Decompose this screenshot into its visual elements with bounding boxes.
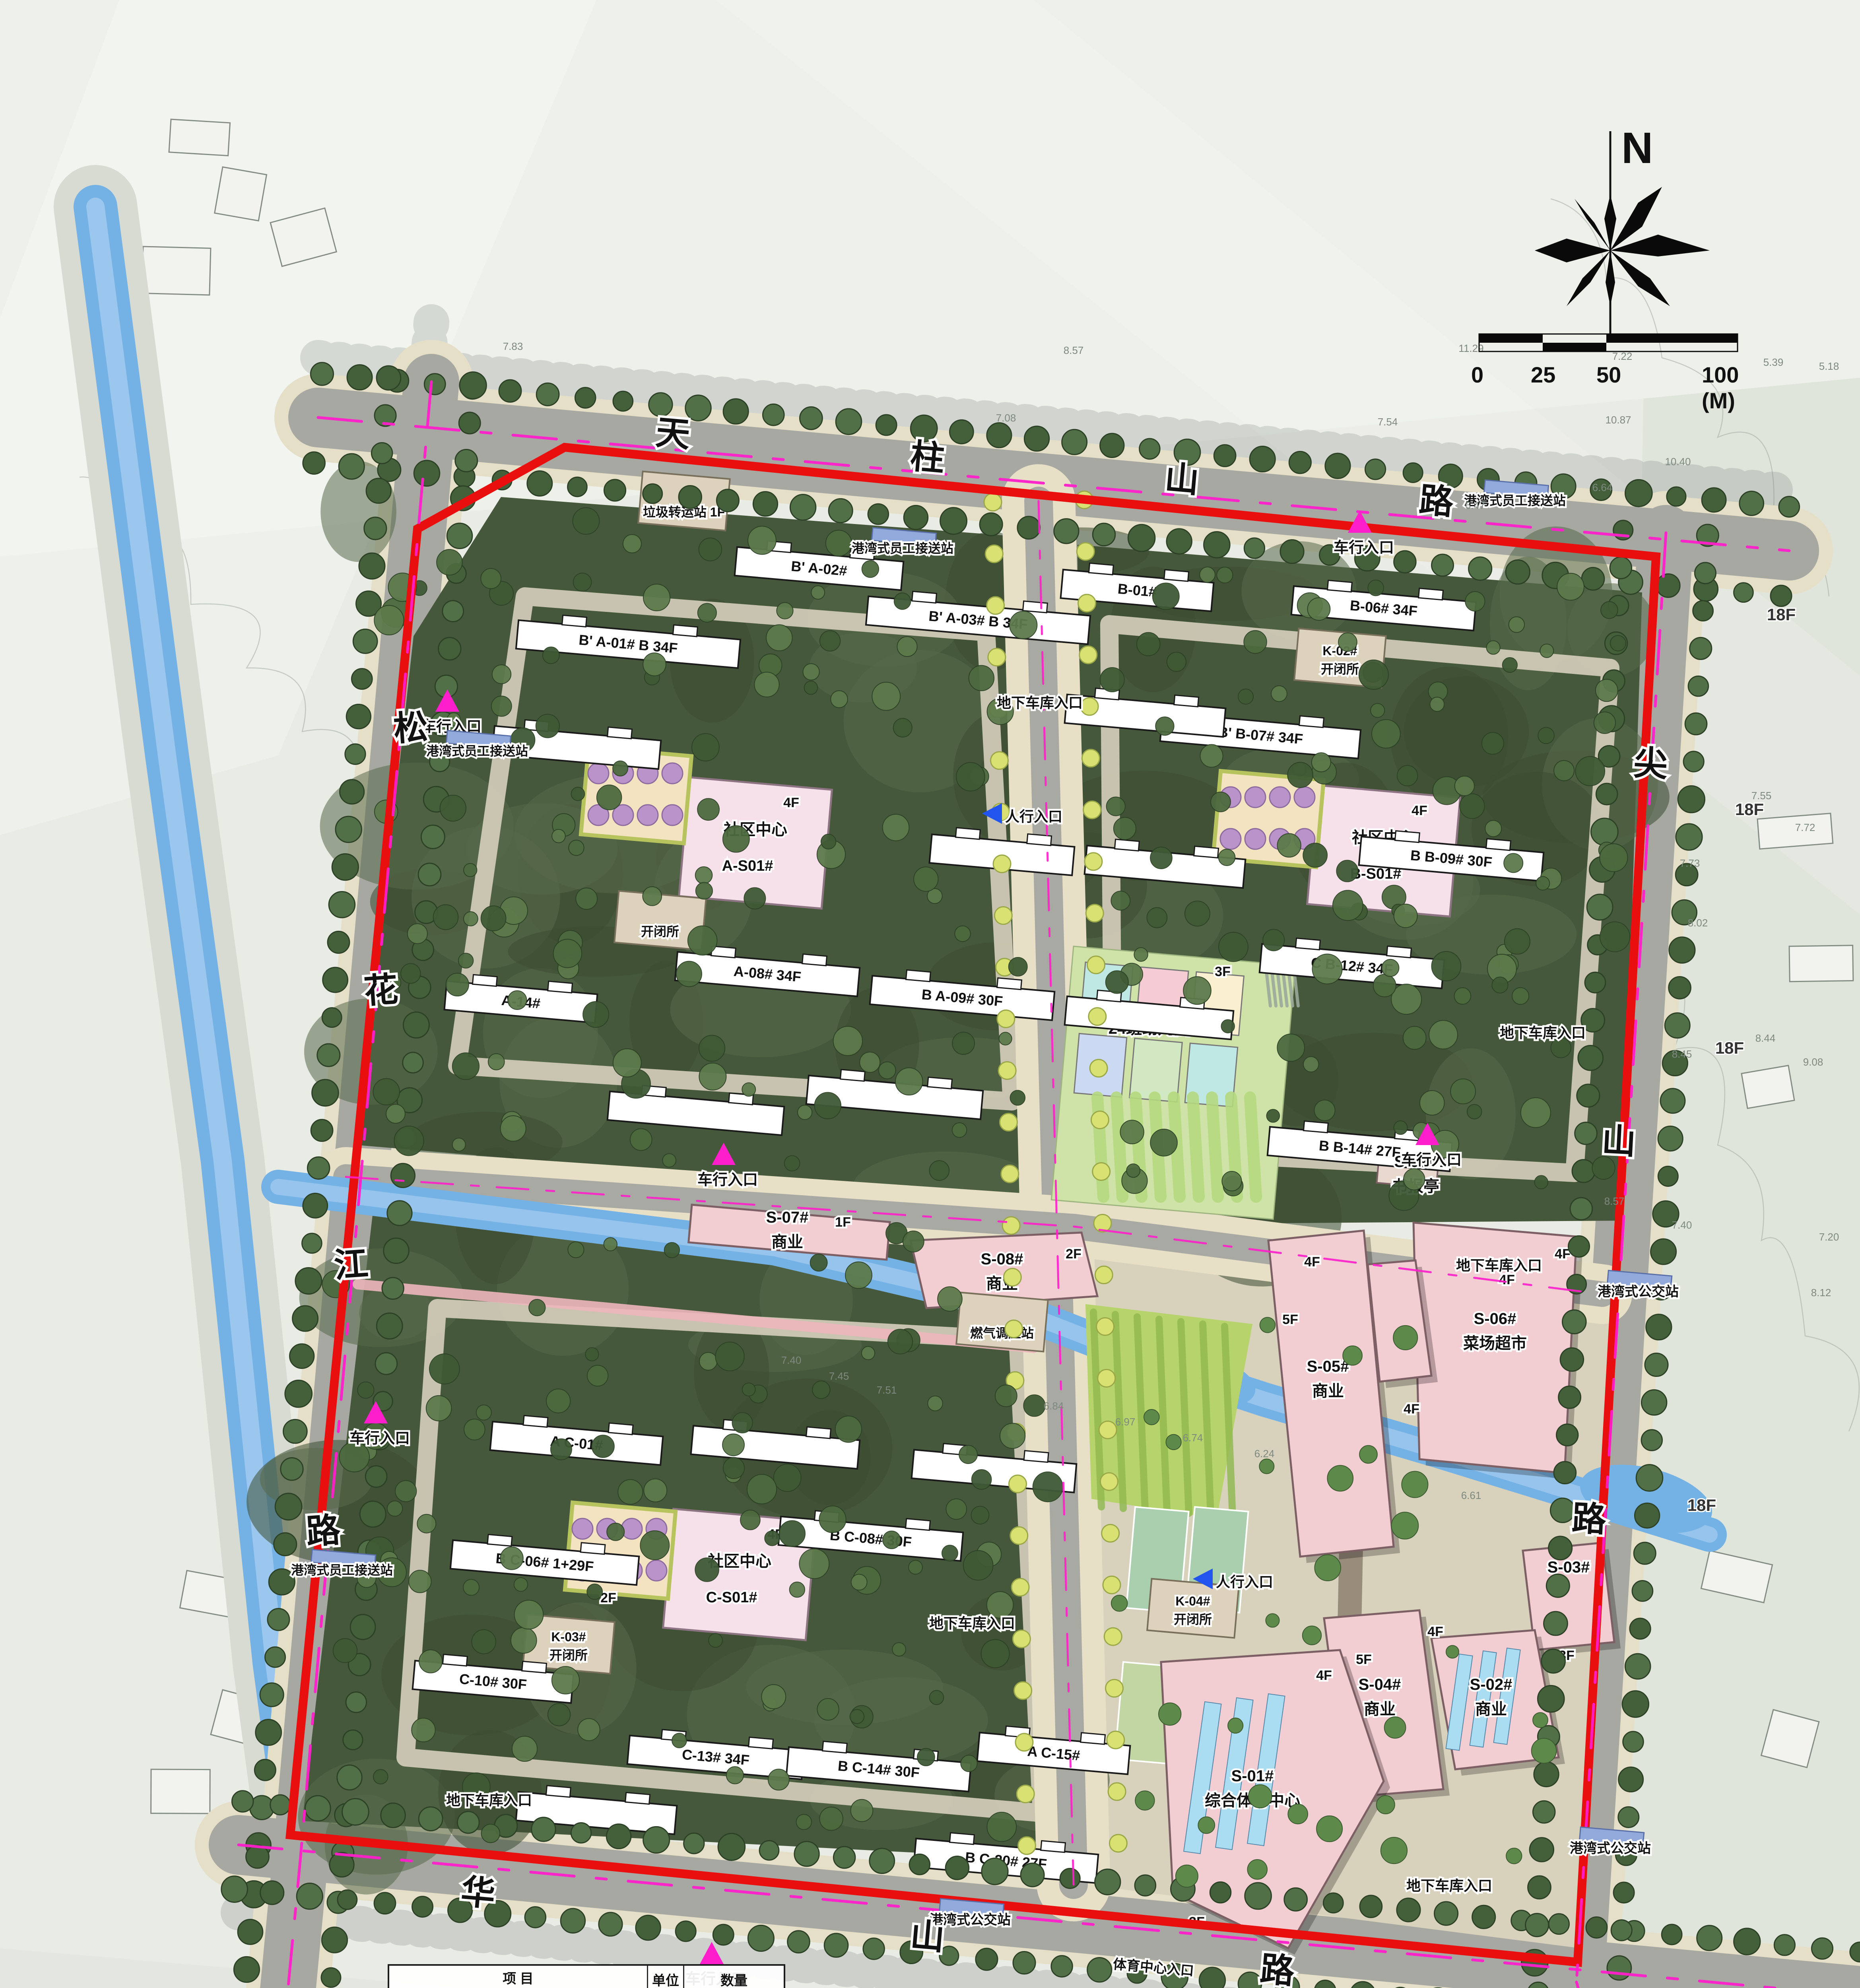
street-tree [1690, 637, 1712, 659]
courtyard-tree [768, 1769, 789, 1790]
courtyard-tree [408, 924, 427, 944]
street-tree [384, 1238, 409, 1264]
street-tree [1403, 463, 1423, 482]
courtyard-tree [872, 682, 900, 711]
courtyard-tree [529, 1299, 545, 1316]
street-tree [1660, 1089, 1685, 1113]
map-shape [1041, 1841, 1066, 1852]
street-tree [1572, 1160, 1595, 1182]
courtyard-tree [845, 1262, 872, 1289]
street-tree [1506, 560, 1530, 584]
street-tree [723, 399, 748, 424]
commercial-id: S-02# [1470, 1676, 1512, 1693]
survey-elevation: 8.57 [1064, 344, 1084, 356]
courtyard-tree [961, 1755, 977, 1772]
street-tree [748, 1925, 774, 1951]
street-tree [1093, 523, 1115, 546]
street-tree [1021, 1863, 1044, 1887]
courtyard-tree [1137, 633, 1160, 656]
map-shape [548, 981, 573, 993]
courtyard-tree [1333, 890, 1363, 920]
courtyard-tree [1126, 1164, 1140, 1177]
floor-tag: 2F [1066, 1246, 1081, 1262]
survey-elevation: 7.40 [1672, 1219, 1692, 1231]
courtyard-tree [1467, 1105, 1482, 1119]
street-tree [525, 1907, 546, 1928]
courtyard-tree [826, 530, 852, 556]
street-tree [1676, 824, 1702, 850]
street-tree [794, 1842, 819, 1866]
ornamental-tree [990, 752, 1008, 769]
street-tree [270, 1795, 290, 1815]
street-tree [606, 1824, 631, 1849]
courtyard-tree [419, 1650, 442, 1673]
scale-tick: 100 (M) [1702, 362, 1749, 414]
street-tree [1774, 1935, 1795, 1955]
street-tree [418, 863, 441, 886]
courtyard-tree [695, 1558, 718, 1581]
map-shape [997, 978, 1022, 990]
ornamental-tree [985, 545, 1003, 563]
courtyard-tree [548, 1703, 570, 1726]
commercial-id: S-01# [1231, 1767, 1274, 1785]
street-tree [1244, 538, 1264, 558]
commercial-id: S-03# [1547, 1559, 1590, 1576]
survey-elevation: 10.40 [1665, 456, 1691, 468]
courtyard-tree [543, 647, 559, 664]
plaza-tree [1377, 1796, 1395, 1814]
plaza-tree [1228, 1718, 1243, 1733]
courtyard-tree [511, 1627, 537, 1653]
map-shape [443, 1654, 467, 1666]
street-tree [303, 452, 325, 474]
courtyard-tree [811, 586, 825, 599]
courtyard-tree [481, 906, 506, 931]
courtyard-tree [1455, 776, 1474, 796]
commercial-id: S-04# [1359, 1676, 1401, 1693]
plaza-tree [1260, 1317, 1276, 1333]
street-tree [459, 412, 480, 434]
courtyard-tree [373, 1079, 400, 1105]
courtyard-tree [688, 926, 717, 955]
plaza-tree [1532, 1738, 1556, 1763]
survey-elevation: 6.64 [1592, 481, 1613, 493]
courtyard-tree [917, 1748, 935, 1766]
street-tree [365, 1466, 387, 1487]
plaza-tree [1381, 1837, 1407, 1864]
street-tree [232, 1791, 253, 1812]
flowering-tree [646, 1560, 667, 1581]
street-tree [636, 1915, 660, 1940]
street-tree [1683, 751, 1704, 772]
ornamental-tree [1098, 1369, 1115, 1387]
street-tree [499, 380, 521, 402]
street-tree [1610, 557, 1632, 579]
street-tree [946, 1856, 969, 1880]
map-shape [1304, 1121, 1328, 1133]
survey-elevation: 7.54 [1378, 416, 1398, 428]
street-tree [1693, 601, 1713, 621]
courtyard-tree [1010, 1090, 1025, 1105]
street-tree [377, 1313, 402, 1339]
survey-elevation: 8.02 [1688, 917, 1708, 929]
courtyard-tree [618, 1479, 643, 1504]
flowering-tree [1245, 787, 1266, 808]
courtyard-tree [1106, 971, 1128, 993]
street-tree [254, 1759, 276, 1780]
courtyard-tree [1397, 765, 1417, 786]
street-tree [1656, 574, 1680, 597]
survey-elevation: 6.47 [1465, 499, 1485, 511]
street-tree [1771, 585, 1792, 606]
street-tree [1100, 433, 1124, 457]
street-tree [305, 1796, 330, 1821]
courtyard-tree [1287, 762, 1313, 788]
courtyard-tree [799, 1549, 829, 1579]
street-tree [347, 365, 372, 390]
ornamental-tree [1014, 1682, 1032, 1699]
floor-tag: 4F [1427, 1624, 1443, 1639]
courtyard-tree [820, 631, 841, 651]
kindergarten-floors: 3F [1215, 964, 1231, 979]
courtyard-tree [883, 1531, 900, 1549]
map-shape [608, 727, 632, 739]
plaza-tree [1135, 1791, 1154, 1810]
map-shape [562, 615, 587, 627]
road-name-char: 尖 [1633, 744, 1669, 784]
plaza-tree [1166, 1435, 1181, 1450]
street-tree [982, 1858, 1008, 1885]
plaza-tree [1393, 1326, 1417, 1350]
courtyard-tree [1403, 1026, 1426, 1049]
street-tree [568, 477, 587, 497]
street-tree [1167, 529, 1192, 554]
ornamental-tree [1100, 1473, 1118, 1490]
street-tree [1811, 1938, 1833, 1959]
street-tree [340, 780, 364, 804]
street-tree [575, 388, 596, 408]
street-tree [1054, 519, 1079, 544]
courtyard-tree [1147, 908, 1167, 928]
plaza-tree [1446, 1645, 1459, 1658]
courtyard-tree [723, 826, 749, 852]
vehicle-entrance-label: 车行入口 [697, 1172, 758, 1188]
street-tree [679, 485, 701, 508]
courtyard-tree [1267, 1109, 1280, 1122]
street-tree [1632, 1581, 1653, 1602]
courtyard-tree [744, 888, 765, 909]
courtyard-tree [426, 1396, 452, 1421]
courtyard-tree [1534, 1175, 1548, 1189]
street-tree [836, 409, 862, 435]
street-tree [1365, 459, 1386, 480]
courtyard-tree [894, 593, 911, 610]
courtyard-tree [699, 1035, 725, 1061]
courtyard-tree [812, 1381, 830, 1398]
street-tree [1613, 1882, 1634, 1903]
courtyard-tree [695, 867, 713, 884]
road-name-char: 华 [460, 1873, 497, 1914]
street-tree [403, 1012, 429, 1038]
shuttle-stop-label: 港湾式员工接送站 [426, 744, 528, 758]
street-tree [1128, 524, 1155, 551]
street-tree [536, 383, 559, 406]
survey-elevation: 7.45 [829, 1370, 849, 1382]
ornamental-tree [1109, 1835, 1127, 1852]
courtyard-tree [1504, 854, 1523, 873]
courtyard-tree [1010, 611, 1037, 639]
plaza-tree [1327, 1466, 1353, 1491]
street-tree [1544, 1611, 1568, 1635]
map-shape [522, 1661, 547, 1673]
street-tree [328, 931, 349, 953]
road-name-char: 路 [1571, 1499, 1608, 1539]
ornamental-tree [1004, 1268, 1021, 1286]
courtyard-tree [817, 1699, 839, 1720]
street-tree [238, 1920, 263, 1945]
street-tree [1665, 1013, 1690, 1038]
street-tree [571, 1823, 591, 1843]
courtyard-tree [999, 1032, 1012, 1045]
street-tree [1702, 488, 1726, 512]
street-tree [332, 854, 358, 880]
survey-elevation: 6.24 [1254, 1448, 1275, 1460]
street-tree [643, 484, 662, 503]
courtyard-tree [464, 912, 478, 926]
street-tree [763, 404, 784, 425]
street-tree [1625, 1654, 1650, 1679]
courtyard-tree [697, 798, 719, 820]
street-tree [1472, 1905, 1495, 1928]
community-floors: 4F [1412, 803, 1427, 818]
courtyard-tree [417, 1514, 436, 1533]
ornamental-tree [998, 1062, 1016, 1079]
plaza-tree [1343, 1346, 1362, 1365]
street-tree [604, 480, 625, 501]
street-tree [868, 504, 889, 524]
street-tree [323, 967, 348, 992]
existing-building [169, 119, 230, 156]
courtyard-tree [732, 1413, 753, 1433]
ornamental-tree [988, 648, 1006, 666]
flowering-tree [1220, 829, 1241, 849]
commercial-id: S-05# [1307, 1358, 1349, 1375]
courtyard-tree [952, 1032, 975, 1054]
flowering-tree [621, 1518, 642, 1539]
ornamental-tree [1078, 594, 1096, 612]
courtyard-tree [1485, 820, 1501, 837]
flowering-tree [572, 1518, 593, 1539]
courtyard-tree [440, 795, 466, 821]
street-tree [311, 1120, 333, 1142]
street-tree [1734, 583, 1753, 602]
survey-elevation: 5.18 [1819, 360, 1839, 372]
courtyard-tree [740, 1510, 760, 1530]
courtyard-tree [607, 1523, 624, 1541]
commercial-name: 商业 [1312, 1382, 1344, 1400]
existing-building [151, 1769, 210, 1813]
survey-elevation: 6.61 [1461, 1489, 1481, 1501]
street-tree [457, 1811, 479, 1833]
ornamental-tree [1093, 1163, 1110, 1180]
street-tree [351, 669, 372, 689]
courtyard-tree [1150, 1129, 1177, 1156]
courtyard-tree [774, 1464, 801, 1491]
courtyard-tree [551, 1439, 572, 1460]
survey-elevation: 6.97 [1115, 1416, 1136, 1428]
street-tree [759, 1840, 779, 1860]
courtyard-tree [1336, 860, 1358, 882]
ornamental-tree [1079, 646, 1097, 664]
courtyard-tree [515, 1600, 544, 1629]
courtyard-tree [1538, 728, 1554, 744]
street-tree [1575, 1122, 1597, 1145]
map-shape [1081, 1733, 1105, 1744]
courtyard-tree [1540, 644, 1553, 658]
courtyard-tree [942, 1545, 958, 1561]
survey-elevation: 8.44 [1755, 1032, 1776, 1044]
plaza-tree [1259, 1459, 1274, 1474]
plaza-tree [1506, 1848, 1522, 1864]
courtyard-tree [1492, 977, 1508, 993]
map-shape [912, 591, 937, 603]
street-tree [260, 1683, 283, 1706]
street-tree [317, 1044, 340, 1066]
road-name-char: 路 [305, 1511, 342, 1551]
map-shape [928, 1077, 952, 1089]
street-tree [1557, 1424, 1578, 1446]
courtyard-tree [895, 1068, 923, 1095]
survey-elevation: 8.45 [1672, 1048, 1692, 1060]
survey-elevation: 6.84 [1044, 1400, 1064, 1412]
street-tree [1630, 1618, 1650, 1639]
courtyard-tree [761, 1685, 786, 1709]
map-shape [1089, 563, 1113, 575]
street-tree [1280, 540, 1304, 563]
courtyard-tree [643, 887, 662, 906]
utility-name: 燃气调压站 [970, 1326, 1034, 1340]
courtyard-tree [508, 991, 526, 1010]
street-tree [1618, 1807, 1639, 1827]
map-shape [840, 1070, 865, 1081]
courtyard-tree [987, 1592, 1013, 1618]
col-item: 项 目 [389, 1972, 647, 1986]
courtyard-tree [476, 1405, 491, 1420]
plaza-tree [1248, 1785, 1272, 1808]
courtyard-tree [446, 973, 468, 996]
courtyard-tree [357, 1382, 374, 1398]
map-shape [802, 954, 827, 966]
garage-entrance-label: 地下车库入口 [997, 695, 1083, 711]
courtyard-tree [613, 761, 628, 776]
courtyard-tree [723, 1458, 744, 1479]
street-tree [1538, 1685, 1564, 1712]
scale-tick: 25 [1531, 362, 1555, 388]
survey-elevation: 8.12 [1811, 1287, 1831, 1299]
ornamental-tree [1091, 1111, 1109, 1129]
courtyard-tree [955, 926, 971, 942]
pedestrian-entrance-label: 人行入口 [1005, 808, 1062, 825]
courtyard-tree [1430, 697, 1444, 711]
survey-elevation: 7.51 [877, 1384, 897, 1396]
street-tree [460, 372, 486, 399]
street-tree [1635, 1503, 1659, 1528]
courtyard-tree [664, 1242, 680, 1258]
street-tree [1199, 1967, 1225, 1988]
flowering-tree [588, 763, 609, 784]
street-tree [443, 601, 464, 622]
street-tree [1534, 1762, 1559, 1786]
ornamental-tree [1087, 956, 1105, 974]
courtyard-tree [1153, 583, 1179, 610]
street-tree [876, 415, 897, 435]
street-tree [342, 1799, 369, 1825]
outside-floor-label: 18F [1767, 605, 1796, 624]
street-tree [312, 1079, 339, 1106]
courtyard-tree [699, 1353, 717, 1371]
courtyard-tree [569, 840, 584, 856]
courtyard-tree [1610, 635, 1626, 651]
street-tree [1611, 1920, 1632, 1941]
road-name-char: 山 [1601, 1122, 1637, 1161]
courtyard-tree [672, 1733, 687, 1748]
street-tree [403, 1052, 423, 1073]
map-shape [487, 1534, 512, 1546]
street-tree [1533, 1801, 1555, 1823]
courtyard-tree [952, 1123, 967, 1138]
street-tree [289, 1344, 314, 1368]
street-tree [1060, 1868, 1080, 1888]
ornamental-tree [984, 493, 1002, 511]
ornamental-tree [997, 1010, 1015, 1027]
map-shape [581, 1543, 605, 1554]
courtyard-tree [1314, 1100, 1335, 1121]
courtyard-tree [698, 604, 716, 622]
map-shape [1023, 601, 1048, 613]
courtyard-tree [630, 1129, 652, 1151]
street-tree [1634, 1542, 1656, 1564]
courtyard-tree [883, 814, 909, 841]
courtyard-tree [1155, 717, 1174, 735]
site-plan-canvas: 3F24班幼儿园30米跑道4F社区中心A-S01#4F社区中心B-S01#4F社… [0, 0, 1860, 1988]
street-tree [1587, 894, 1613, 920]
street-tree [1435, 1902, 1458, 1925]
garage-entrance-label: 地下车库入口 [1500, 1025, 1586, 1041]
courtyard-tree [860, 1052, 880, 1072]
ornamental-tree [1013, 1630, 1030, 1648]
courtyard-tree [464, 1419, 485, 1440]
ornamental-tree [1018, 1837, 1035, 1854]
courtyard-tree [437, 549, 462, 575]
map-shape [625, 1792, 650, 1804]
courtyard-tree [1238, 689, 1253, 704]
road-name-char: 路 [1418, 481, 1456, 522]
street-tree [1636, 1465, 1663, 1491]
play-stripe [1193, 1097, 1199, 1197]
street-tree [322, 1008, 342, 1027]
courtyard-tree [748, 526, 776, 555]
courtyard-tree [963, 1551, 993, 1580]
vehicle-entrance-label: 车行入口 [1334, 540, 1394, 556]
courtyard-tree [1150, 847, 1172, 869]
ornamental-tree [1012, 1578, 1029, 1596]
ornamental-tree [1009, 1475, 1026, 1493]
street-tree [1641, 1390, 1666, 1415]
map-shape [950, 1833, 975, 1844]
street-tree [1669, 977, 1691, 999]
street-tree [1658, 1126, 1683, 1151]
street-tree [360, 1501, 386, 1527]
